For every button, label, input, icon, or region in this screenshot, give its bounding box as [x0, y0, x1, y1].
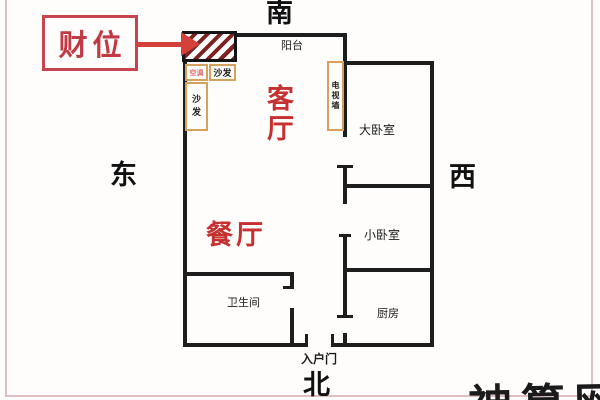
- callout-arrow-head-icon: [181, 32, 200, 56]
- master-bedroom-label: 大卧室: [359, 121, 395, 138]
- sofa-top-label: 沙发: [213, 66, 231, 79]
- air-conditioner-label: 空调: [190, 68, 204, 78]
- site-watermark: 神算网: [467, 368, 600, 400]
- compass-south-label: 南: [266, 0, 293, 27]
- balcony-label: 阳台: [281, 37, 303, 53]
- compass-east-label: 东: [110, 162, 137, 189]
- sofa-side-box: 沙发: [185, 82, 208, 131]
- living-room-label: 客厅: [259, 84, 298, 144]
- wall-kitchen-divider: [343, 268, 430, 272]
- tv-wall-box: 电视墙: [327, 61, 344, 131]
- small-bedroom-label: 小卧室: [364, 226, 400, 243]
- bathroom-label: 卫生间: [227, 294, 260, 310]
- door-tick-kitchen: [337, 315, 353, 318]
- sofa-top-box: 沙发: [209, 64, 236, 81]
- air-conditioner-box: 空调: [185, 64, 208, 81]
- door-tick-master-bedroom: [337, 165, 353, 168]
- tv-wall-label: 电视墙: [330, 81, 341, 111]
- entrance-door-label: 入户门: [301, 350, 337, 367]
- wall-bedroom-divider: [343, 184, 434, 188]
- wall-inner-vertical-b: [343, 168, 347, 204]
- wealth-position-label: 财位: [53, 22, 126, 64]
- wall-inner-vertical-c: [343, 237, 347, 318]
- callout-arrow-line: [135, 42, 187, 47]
- wall-bathroom-top: [183, 272, 294, 276]
- kitchen-label: 厨房: [377, 305, 399, 321]
- wall-inner-vertical-d: [343, 333, 347, 347]
- door-tick-bathroom: [283, 286, 294, 289]
- door-tick-small-bedroom: [339, 234, 351, 237]
- sofa-side-label: 沙发: [190, 94, 203, 120]
- wall-bathroom-right-lower: [290, 308, 294, 347]
- wealth-position-callout: 财位: [42, 15, 138, 71]
- door-tick-entrance-left: [305, 334, 308, 345]
- wall-outer-right: [430, 61, 434, 347]
- dining-room-label: 餐厅: [206, 213, 266, 252]
- floorplan-diagram: 财位 空调 沙发 沙发 电视墙 阳台 客厅 餐厅 大卧室 小卧室 厨房 卫生间 …: [0, 0, 600, 400]
- wall-master-bedroom-top: [343, 61, 434, 65]
- compass-west-label: 西: [449, 164, 476, 191]
- door-tick-entrance-right: [331, 334, 334, 345]
- compass-north-label: 北: [303, 372, 330, 399]
